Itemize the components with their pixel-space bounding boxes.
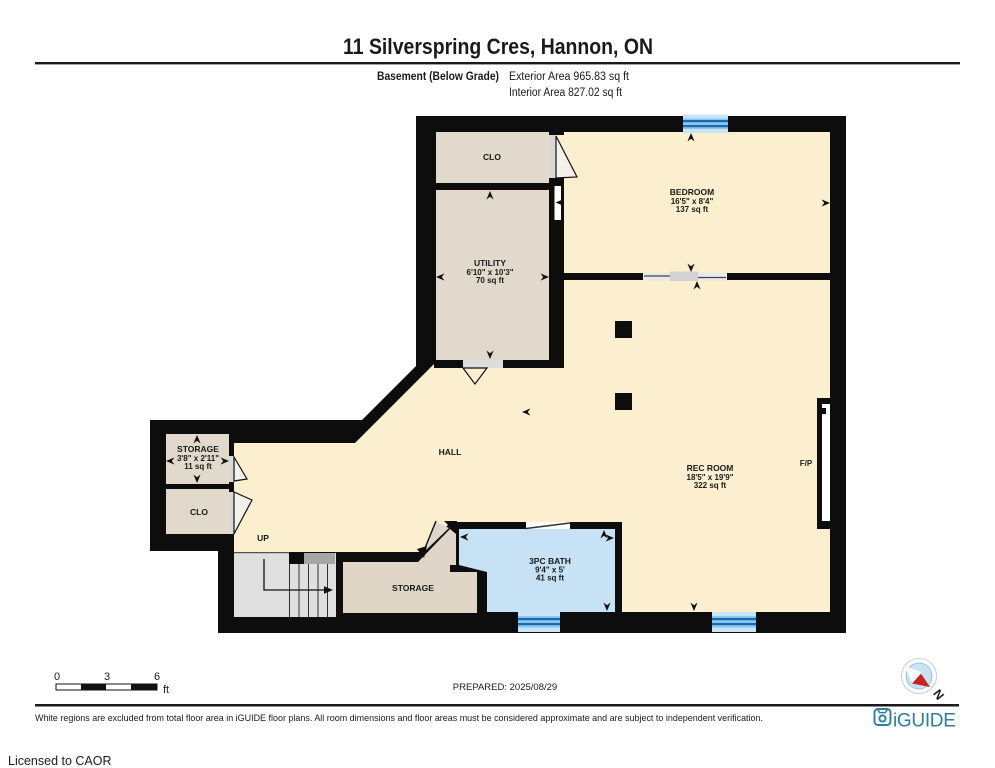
svg-text:White regions are excluded fro: White regions are excluded from total fl… [35,712,763,723]
svg-text:Exterior Area 965.83 sq ft: Exterior Area 965.83 sq ft [509,71,630,83]
svg-text:N: N [930,687,947,703]
svg-text:Interior Area 827.02 sq ft: Interior Area 827.02 sq ft [509,87,623,99]
svg-text:322 sq ft: 322 sq ft [694,481,727,490]
svg-text:iGUIDE: iGUIDE [893,711,956,732]
svg-text:41 sq ft: 41 sq ft [536,574,564,583]
svg-text:PREPARED: 2025/08/29: PREPARED: 2025/08/29 [453,682,557,693]
svg-text:70 sq ft: 70 sq ft [476,276,504,285]
svg-text:3PC BATH: 3PC BATH [529,556,571,566]
svg-text:BEDROOM: BEDROOM [670,187,714,197]
svg-text:Licensed to CAOR: Licensed to CAOR [8,754,112,768]
svg-text:UP: UP [257,533,269,543]
svg-text:STORAGE: STORAGE [392,583,434,593]
svg-text:REC ROOM: REC ROOM [687,463,734,473]
svg-text:ft: ft [163,684,169,696]
svg-text:CLO: CLO [483,152,501,162]
svg-text:HALL: HALL [439,447,462,457]
svg-text:UTILITY: UTILITY [474,258,506,268]
svg-text:6: 6 [154,671,160,683]
svg-text:3: 3 [104,671,110,683]
svg-text:0: 0 [54,671,60,683]
svg-text:11 Silverspring Cres, Hannon,: 11 Silverspring Cres, Hannon, ON [343,34,653,59]
svg-text:CLO: CLO [190,507,208,517]
svg-text:F/P: F/P [800,459,813,468]
svg-text:137 sq ft: 137 sq ft [676,205,709,214]
svg-text:STORAGE: STORAGE [177,444,219,454]
svg-text:11 sq ft: 11 sq ft [184,462,212,471]
svg-text:Basement (Below Grade): Basement (Below Grade) [377,71,499,83]
